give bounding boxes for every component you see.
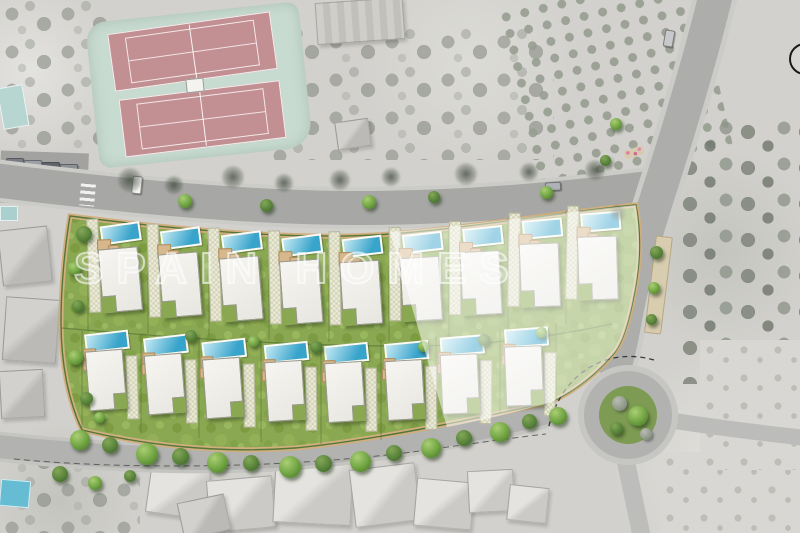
tree-shadow (455, 163, 477, 185)
tree-shadow (585, 160, 605, 180)
street-tree (428, 191, 440, 203)
street-tree (549, 407, 567, 425)
garden-tree (72, 300, 84, 312)
garden-tree (310, 341, 322, 353)
tree-shadow (118, 168, 142, 192)
tree-shadow (165, 176, 183, 194)
street-tree (260, 199, 273, 212)
street-tree (279, 456, 301, 478)
street-tree (362, 195, 376, 209)
street-tree (207, 452, 228, 473)
garden-tree (536, 327, 547, 338)
street-tree (350, 451, 371, 472)
street-tree (124, 470, 136, 482)
garden-tree (68, 350, 83, 365)
street-tree (315, 455, 332, 472)
median-tree (650, 246, 663, 259)
street-tree (522, 414, 537, 429)
garden-tree (94, 412, 105, 423)
garden-tree (76, 226, 92, 242)
roundabout-tree (612, 396, 627, 411)
tree-shadow (275, 174, 293, 192)
tree-shadow (382, 168, 400, 186)
street-tree (172, 448, 189, 465)
garden-tree (418, 341, 429, 352)
street-tree (490, 422, 510, 442)
tree-shadow (610, 205, 626, 221)
street-tree (386, 445, 402, 461)
median-tree (648, 282, 660, 294)
street-tree (52, 466, 68, 482)
roundabout-tree (610, 422, 623, 435)
garden-tree (248, 336, 259, 347)
street-tree (102, 437, 118, 453)
watermark-text: SPAIN HOMES (74, 244, 522, 294)
median-tree (646, 314, 657, 325)
street-tree (70, 430, 90, 450)
garden-tree (185, 330, 197, 342)
tree-shadow (520, 163, 538, 181)
roundabout-tree (640, 428, 652, 440)
street-tree (421, 438, 441, 458)
street-tree (540, 186, 553, 199)
street-tree (178, 194, 192, 208)
street-tree (456, 430, 472, 446)
street-tree (243, 455, 259, 471)
street-tree (88, 476, 102, 490)
street-tree (136, 443, 158, 465)
garden-tree (478, 334, 490, 346)
median-tree (610, 118, 622, 130)
roundabout-tree (628, 406, 648, 426)
site-plan: SPAIN HOMES (0, 0, 800, 533)
tree-shadow (330, 170, 350, 190)
garden-tree (80, 392, 93, 405)
tree-shadow (222, 166, 244, 188)
